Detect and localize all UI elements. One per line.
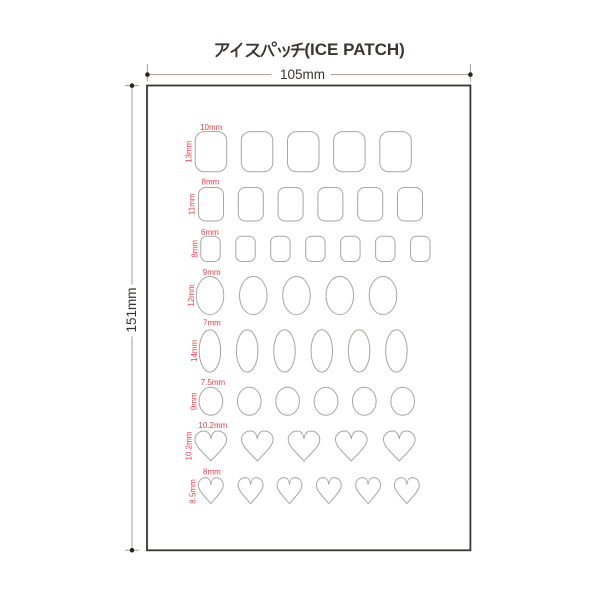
svg-text:10.2mm: 10.2mm bbox=[185, 431, 194, 460]
svg-text:8.5mm: 8.5mm bbox=[188, 479, 197, 504]
svg-text:8mm: 8mm bbox=[202, 177, 220, 186]
svg-text:105mm: 105mm bbox=[280, 67, 325, 82]
svg-text:151mm: 151mm bbox=[124, 287, 139, 332]
svg-text:10.2mm: 10.2mm bbox=[198, 421, 227, 430]
svg-text:8mm: 8mm bbox=[191, 240, 200, 258]
svg-text:8mm: 8mm bbox=[203, 468, 221, 477]
svg-text:12mm: 12mm bbox=[187, 284, 196, 307]
svg-text:7mm: 7mm bbox=[203, 319, 221, 328]
svg-text:9mm: 9mm bbox=[190, 392, 199, 410]
svg-text:10mm: 10mm bbox=[200, 123, 223, 132]
svg-text:13mm: 13mm bbox=[185, 140, 194, 163]
svg-text:(ICE PATCH): (ICE PATCH) bbox=[304, 40, 404, 59]
svg-text:11mm: 11mm bbox=[187, 193, 196, 215]
svg-text:9mm: 9mm bbox=[203, 268, 221, 277]
svg-text:6mm: 6mm bbox=[201, 228, 219, 237]
svg-text:7.5mm: 7.5mm bbox=[201, 378, 226, 387]
svg-text:14mm: 14mm bbox=[190, 339, 199, 362]
